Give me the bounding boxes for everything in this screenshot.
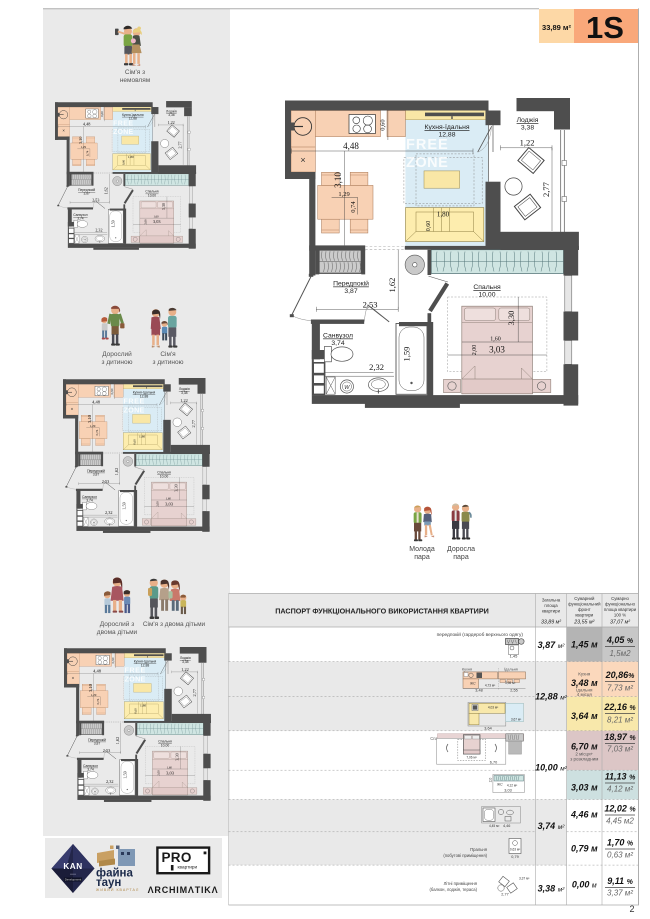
svg-text:33,89 м²: 33,89 м² [542,23,571,32]
svg-text:4,45 м²: 4,45 м² [489,824,499,828]
svg-text:6,70 м: 6,70 м [571,742,598,752]
svg-text:Сім'я: Сім'я [160,350,176,358]
svg-text:Дорослий з: Дорослий з [100,620,134,628]
svg-text:Доросла: Доросла [447,546,475,553]
svg-text:3,03: 3,03 [504,789,511,793]
svg-text:0,63 м²: 0,63 м² [607,851,633,860]
svg-text:Загальна: Загальна [542,598,561,603]
svg-text:ЖС: ЖС [469,682,476,686]
svg-text:7,03 м²: 7,03 м² [607,745,633,754]
svg-text:4,03 м²: 4,03 м² [488,706,498,710]
svg-text:3,64 м: 3,64 м [571,711,598,721]
svg-text:ЖС: ЖС [496,783,503,787]
svg-text:3,98 м²: 3,98 м² [505,681,515,685]
svg-text:квартири: квартири [542,609,561,614]
svg-text:1,45 м: 1,45 м [571,640,598,650]
svg-text:7,73 м²: 7,73 м² [607,684,633,693]
svg-text:0,00 м: 0,00 м [572,880,597,890]
svg-text:двома дітьми: двома дітьми [97,628,138,636]
svg-text:KAN: KAN [63,862,82,871]
svg-text:площа квартири: площа квартири [604,607,637,612]
svg-text:з розкладним: з розкладним [570,757,598,762]
svg-text:33,89 м²: 33,89 м² [541,620,561,626]
svg-text:1S: 1S [586,10,624,45]
svg-text:0,63 м²: 0,63 м² [510,848,520,852]
svg-text:Development: Development [65,878,82,882]
svg-text:1,70 %: 1,70 % [607,838,634,848]
svg-text:3,48: 3,48 [475,689,482,693]
svg-text:Пральня: Пральня [470,847,487,852]
svg-text:9,11 %: 9,11 % [607,876,633,886]
svg-text:ЖИВИЙ КВАРТАЛ: ЖИВИЙ КВАРТАЛ [96,888,139,892]
svg-text:пара: пара [453,554,469,561]
svg-text:4 місця: 4 місця [577,692,593,697]
svg-text:37,07 м²: 37,07 м² [610,620,630,626]
svg-text:10,00 м²: 10,00 м² [535,763,567,773]
svg-text:Літні приміщення: Літні приміщення [444,881,477,886]
svg-text:немовлям: немовлям [120,77,151,84]
svg-text:площа: площа [544,603,558,608]
svg-text:2: 2 [629,904,634,914]
svg-text:23,55 м²: 23,55 м² [573,620,594,626]
svg-text:12,02 %: 12,02 % [604,804,636,814]
svg-text:Сумарно: Сумарно [611,596,629,601]
svg-text:3,48 м: 3,48 м [571,678,598,688]
svg-text:100 %: 100 % [614,613,626,618]
svg-text:3,67 м²: 3,67 м² [511,718,521,722]
svg-text:1,5м2: 1,5м2 [609,649,631,658]
svg-text:з дитиною: з дитиною [153,359,184,366]
svg-text:(балкон, лоджія, тераса): (балкон, лоджія, тераса) [430,887,478,892]
svg-text:7,06 м²: 7,06 м² [466,756,476,760]
svg-text:2,55: 2,55 [510,689,517,693]
svg-text:PRO: PRO [162,850,192,865]
svg-text:Молода: Молода [409,546,435,553]
svg-text:2,0: 2,0 [489,778,493,783]
svg-text:8,21 м²: 8,21 м² [607,716,633,725]
svg-text:Сім'я з: Сім'я з [125,68,145,76]
svg-text:пара: пара [414,554,430,561]
svg-text:функціонально: функціонально [605,602,636,607]
svg-text:4,46: 4,46 [503,824,510,828]
svg-text:передпокій (гардероб верхнього: передпокій (гардероб верхнього одягу) [437,631,524,638]
svg-text:Сім'я з двома дітьми: Сім'я з двома дітьми [143,620,206,628]
svg-text:3,03 м: 3,03 м [571,783,598,793]
svg-text:0,79 м: 0,79 м [571,844,598,854]
svg-text:функціональний: функціональний [568,602,601,607]
svg-text:0,79: 0,79 [511,855,518,859]
svg-text:4,73 м²: 4,73 м² [485,684,495,688]
svg-text:Кухня: Кухня [578,672,591,677]
svg-text:3,38 м²: 3,38 м² [538,884,565,894]
svg-text:3,37 м²: 3,37 м² [519,877,529,881]
svg-text:ПАСПОРТ ФУНКЦІОНАЛЬНОГО ВИКОРИ: ПАСПОРТ ФУНКЦІОНАЛЬНОГО ВИКОРИСТАННЯ КВА… [275,607,489,616]
svg-text:фронт: фронт [578,607,591,612]
svg-text:3,87 м²: 3,87 м² [538,640,565,650]
svg-text:4,46 м: 4,46 м [570,810,598,820]
svg-text:4,12 м²: 4,12 м² [507,784,517,788]
svg-text:1,45: 1,45 [510,654,519,659]
svg-text:квартири: квартири [178,864,198,869]
svg-text:ΛRCHIMΛTIKΛ: ΛRCHIMΛTIKΛ [148,885,219,895]
svg-text:квартири: квартири [575,613,594,618]
svg-text:Їдальня: Їдальня [504,668,518,672]
svg-text:4,45 м2: 4,45 м2 [606,817,634,826]
svg-text:3,37 м²: 3,37 м² [607,889,633,898]
svg-text:(побутові приміщення): (побутові приміщення) [443,853,487,858]
svg-text:з дитиною: з дитиною [102,359,133,366]
svg-text:Кухня: Кухня [462,668,472,672]
svg-text:2,77: 2,77 [501,893,508,897]
svg-text:4,12 м²: 4,12 м² [607,785,633,794]
svg-text:••••••: •••••• [70,872,76,876]
svg-text:3,64: 3,64 [484,727,491,731]
svg-text:Дорослий: Дорослий [102,350,132,358]
svg-text:6,70: 6,70 [490,761,497,765]
svg-text:Сумарний: Сумарний [574,596,595,601]
